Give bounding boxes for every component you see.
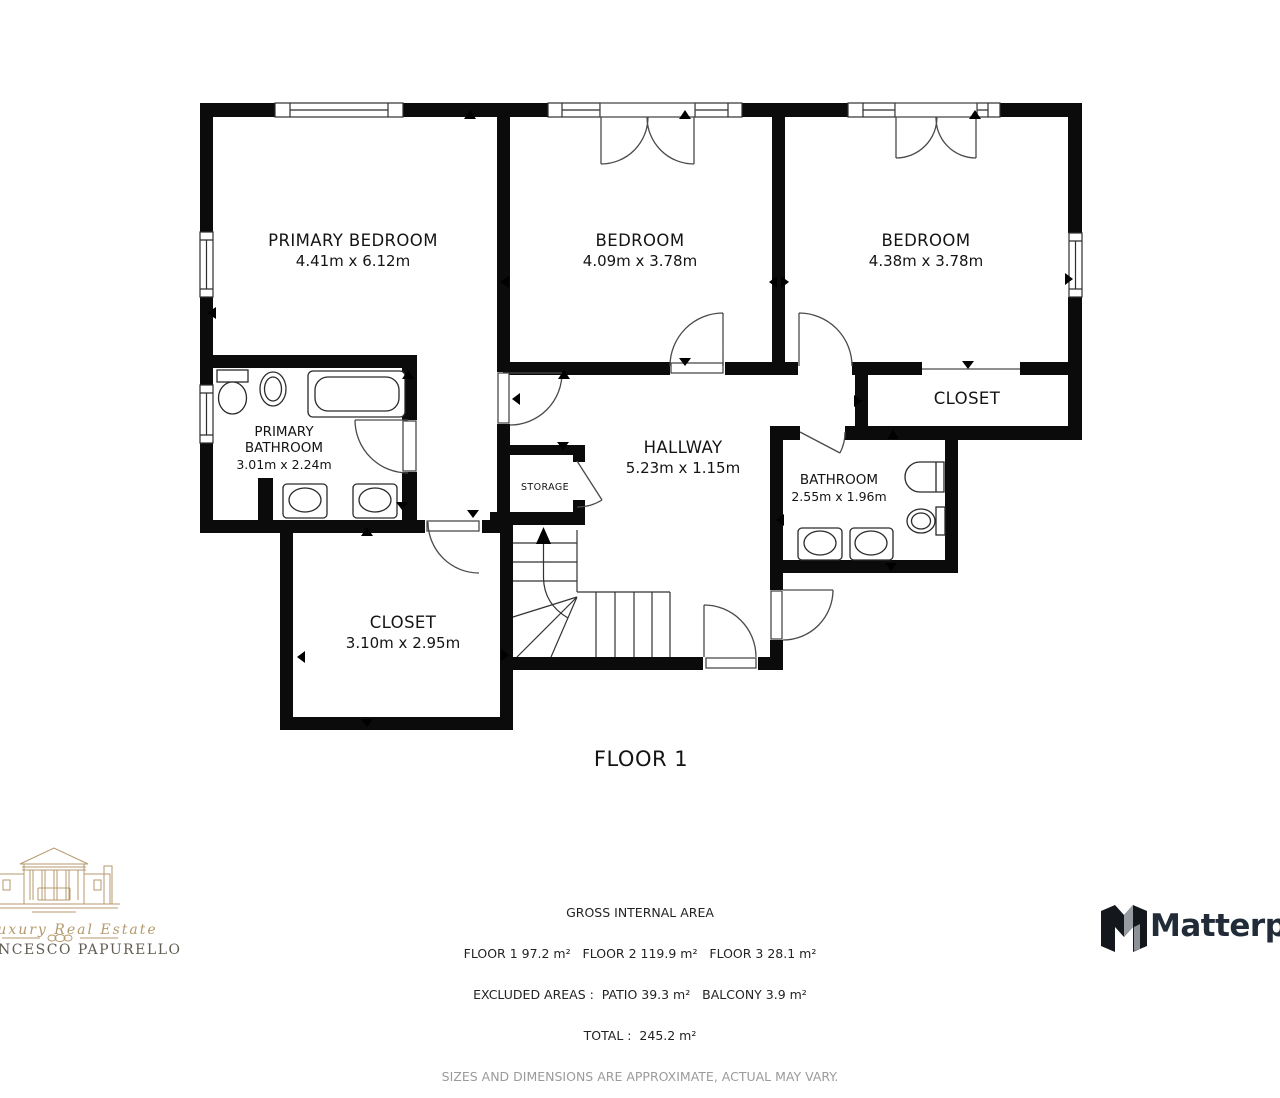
- room-dims: 2.55m x 1.96m: [791, 489, 886, 504]
- room-dims: 4.41m x 6.12m: [268, 252, 438, 270]
- bathtub: [308, 371, 405, 417]
- toilet: [217, 370, 248, 414]
- room-label-bedroom-right: BEDROOM 4.38m x 3.78m: [869, 231, 983, 270]
- shower: [905, 462, 944, 492]
- room-name: BEDROOM: [583, 231, 697, 250]
- room-name: CLOSET: [934, 389, 1001, 408]
- wall-markers: [207, 110, 1073, 727]
- door: [670, 313, 723, 373]
- matterport-icon: [1100, 905, 1148, 953]
- area-summary: GROSS INTERNAL AREA FLOOR 1 97.2 m² FLOO…: [442, 879, 839, 1098]
- doors: [355, 103, 1020, 668]
- room-name: CLOSET: [346, 613, 460, 632]
- area-disclaimer: SIZES AND DIMENSIONS ARE APPROXIMATE, AC…: [442, 1070, 839, 1084]
- floor-plan-canvas: [0, 0, 1280, 960]
- room-label-closet-lower: CLOSET 3.10m x 2.95m: [346, 613, 460, 652]
- sink: [283, 484, 327, 518]
- room-name: HALLWAY: [626, 438, 740, 457]
- area-summary-total: TOTAL : 245.2 m²: [442, 1029, 839, 1043]
- room-label-bathroom: BATHROOM 2.55m x 1.96m: [791, 472, 886, 504]
- room-dims: 4.38m x 3.78m: [869, 252, 983, 270]
- toilet: [907, 507, 945, 535]
- area-summary-floors: FLOOR 1 97.2 m² FLOOR 2 119.9 m² FLOOR 3…: [442, 947, 839, 961]
- window: [200, 232, 213, 297]
- room-dims: 4.09m x 3.78m: [583, 252, 697, 270]
- door: [771, 590, 833, 640]
- room-dims: 3.10m x 2.95m: [346, 634, 460, 652]
- door: [427, 521, 479, 573]
- room-label-bedroom-center: BEDROOM 4.09m x 3.78m: [583, 231, 697, 270]
- sink: [798, 528, 842, 560]
- room-label-storage: STORAGE: [521, 482, 569, 493]
- floor-plan: PRIMARY BEDROOM 4.41m x 6.12m BEDROOM 4.…: [0, 0, 1280, 960]
- staircase: [513, 527, 670, 657]
- room-label-closet-right: CLOSET: [934, 389, 1001, 408]
- window: [548, 103, 600, 117]
- bidet: [260, 372, 286, 406]
- stairs-up-arrowhead: [536, 527, 551, 544]
- window: [200, 385, 213, 443]
- room-name: BATHROOM: [236, 440, 331, 456]
- french-door: [895, 103, 977, 158]
- room-name: PRIMARY: [236, 424, 331, 440]
- room-label-primary-bedroom: PRIMARY BEDROOM 4.41m x 6.12m: [268, 231, 438, 270]
- sink: [850, 528, 893, 560]
- door: [498, 373, 562, 425]
- room-dims: 5.23m x 1.15m: [626, 459, 740, 477]
- room-dims: 3.01m x 2.24m: [236, 457, 331, 472]
- window: [977, 103, 1000, 117]
- agent-name: NCESCO PAPURELLO: [0, 942, 181, 958]
- window: [1069, 233, 1082, 297]
- room-name: BEDROOM: [869, 231, 983, 250]
- window: [695, 103, 742, 117]
- door: [800, 432, 845, 453]
- area-summary-title: GROSS INTERNAL AREA: [442, 906, 839, 920]
- french-door: [600, 103, 695, 164]
- window: [275, 103, 403, 117]
- room-label-hallway: HALLWAY 5.23m x 1.15m: [626, 438, 740, 477]
- room-name: PRIMARY BEDROOM: [268, 231, 438, 250]
- room-name: BATHROOM: [791, 472, 886, 488]
- door: [355, 420, 416, 473]
- floor-title: FLOOR 1: [594, 747, 688, 771]
- door: [704, 605, 756, 668]
- sink: [353, 484, 397, 518]
- window: [848, 103, 895, 117]
- area-summary-excluded: EXCLUDED AREAS : PATIO 39.3 m² BALCONY 3…: [442, 988, 839, 1002]
- villa-illustration-icon: [0, 842, 122, 927]
- provider-name: Matterpo: [1150, 908, 1280, 944]
- room-label-primary-bathroom: PRIMARY BATHROOM 3.01m x 2.24m: [236, 424, 331, 472]
- door: [799, 313, 852, 366]
